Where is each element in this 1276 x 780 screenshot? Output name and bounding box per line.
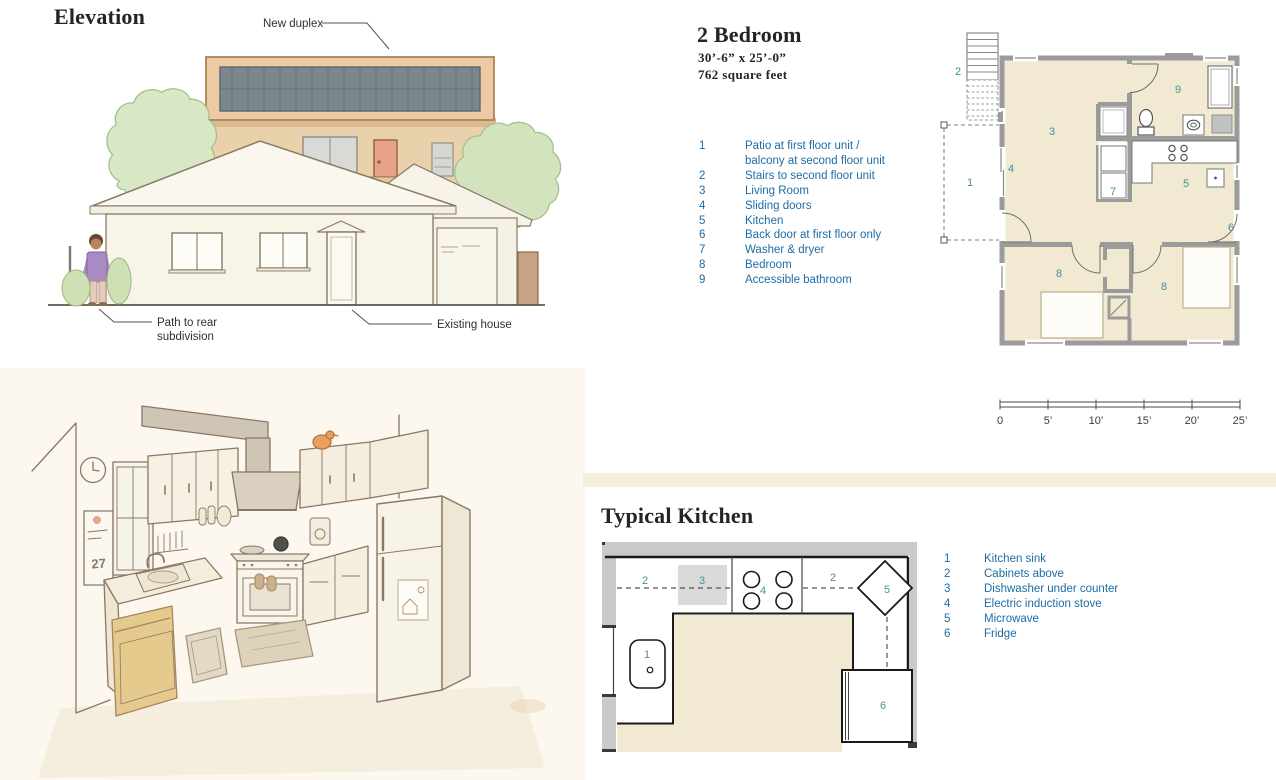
calendar-date: 27 xyxy=(91,556,106,572)
two-bedroom-title: 2 Bedroom xyxy=(697,22,802,48)
legend-label: Dishwasher under counter xyxy=(984,582,1118,597)
legend-label: Fridge xyxy=(984,627,1017,642)
house-window-1 xyxy=(169,233,225,273)
scale-tick-0: 0 xyxy=(997,415,1003,427)
kplan-label-stove: 4 xyxy=(760,585,766,597)
legend-row: 4Sliding doors xyxy=(699,199,919,214)
legend-num: 1 xyxy=(699,139,745,154)
kplan-top-wall xyxy=(602,542,917,556)
legend-row: 7Washer & dryer xyxy=(699,243,919,258)
plan-label-sliding: 4 xyxy=(1008,163,1014,175)
legend-num: 6 xyxy=(944,627,984,642)
legend-label: Washer & dryer xyxy=(745,243,824,258)
legend-row: 2Stairs to second floor unit xyxy=(699,169,919,184)
scale-tick-5: 5’ xyxy=(1044,415,1053,427)
legend-label: Living Room xyxy=(745,184,809,199)
toilet xyxy=(1138,110,1154,136)
plan-label-patio: 1 xyxy=(967,177,973,189)
duplex-window-band xyxy=(220,67,480,111)
legend-label: Kitchen xyxy=(745,214,783,229)
legend-num: 1 xyxy=(944,552,984,567)
scale-tick-25: 25’ xyxy=(1233,415,1248,427)
legend-num xyxy=(699,154,745,169)
section-divider-band xyxy=(583,473,1276,487)
legend-row: 5Kitchen xyxy=(699,214,919,229)
legend-num: 2 xyxy=(944,567,984,582)
two-bedroom-area: 762 square feet xyxy=(698,67,788,83)
scale-tick-10: 10’ xyxy=(1089,415,1104,427)
kitchen-window xyxy=(113,462,153,575)
kplan-label-sink: 1 xyxy=(644,649,650,661)
legend-num: 7 xyxy=(699,243,745,258)
plan-label-bedroom-right: 8 xyxy=(1161,281,1167,293)
fridge-child-drawing xyxy=(398,580,428,620)
stairs xyxy=(967,33,1003,122)
scale-tick-15: 15’ xyxy=(1137,415,1152,427)
typical-kitchen-plan: 2 3 4 2 5 1 6 xyxy=(595,540,925,768)
plan-label-kitchen: 5 xyxy=(1183,178,1189,190)
elevation-drawing: New duplex Path to rear subdivision Exis… xyxy=(0,0,590,370)
legend-row: 2Cabinets above xyxy=(944,567,1174,582)
legend-num: 6 xyxy=(699,228,745,243)
legend-row: 6Back door at first floor only xyxy=(699,228,919,243)
house-window-2 xyxy=(257,233,310,271)
legend-row: 3Dishwasher under counter xyxy=(944,582,1174,597)
wall-clock xyxy=(81,458,106,483)
duplex-side-door xyxy=(432,143,453,176)
kplan-left-wall xyxy=(602,545,616,752)
kplan-label-cabinets-left: 2 xyxy=(642,575,648,587)
wall-calendar xyxy=(84,511,113,585)
typical-kitchen-title: Typical Kitchen xyxy=(601,503,753,529)
kplan-sink xyxy=(630,640,665,688)
legend-num: 5 xyxy=(699,214,745,229)
kitchen-illustration: 27 xyxy=(0,368,585,780)
plan-label-bathroom: 9 xyxy=(1175,84,1181,96)
path-label-line1: Path to rear xyxy=(157,317,217,329)
path-label-line2: subdivision xyxy=(157,331,214,343)
two-bedroom-floor-plan: 1 2 3 4 5 6 7 8 8 9 0 5’ 10’ 15’ 20’ 25’ xyxy=(930,20,1250,432)
legend-num: 9 xyxy=(699,273,745,288)
paint-smudge xyxy=(510,699,546,713)
legend-label: Kitchen sink xyxy=(984,552,1046,567)
legend-num: 4 xyxy=(944,597,984,612)
side-gate xyxy=(518,252,538,305)
two-bedroom-legend: 1Patio at first floor unit / balcony at … xyxy=(699,139,919,288)
legend-label: Accessible bathroom xyxy=(745,273,852,288)
legend-label: Bedroom xyxy=(745,258,792,273)
legend-row: 8Bedroom xyxy=(699,258,919,273)
legend-num: 3 xyxy=(699,184,745,199)
kplan-microwave xyxy=(858,561,912,668)
bush-right xyxy=(107,258,131,304)
architectural-sheet: Elevation xyxy=(0,0,1276,780)
kplan-label-cabinets-right: 2 xyxy=(830,572,836,584)
plan-label-living: 3 xyxy=(1049,126,1055,138)
counter-bottles xyxy=(199,506,231,526)
legend-row: 1Kitchen sink xyxy=(944,552,1174,567)
kplan-fridge xyxy=(842,670,912,742)
new-duplex-label: New duplex xyxy=(263,18,323,30)
dishwasher-cabinet xyxy=(112,606,177,716)
kplan-label-microwave: 5 xyxy=(884,584,890,596)
legend-label: Electric induction stove xyxy=(984,597,1102,612)
legend-row: 5Microwave xyxy=(944,612,1174,627)
plan-label-washer: 7 xyxy=(1110,186,1116,198)
coffee-maker xyxy=(310,518,330,545)
legend-label: balcony at second floor unit xyxy=(745,154,885,169)
legend-num: 4 xyxy=(699,199,745,214)
kplan-label-fridge: 6 xyxy=(880,700,886,712)
legend-label: Patio at first floor unit / xyxy=(745,139,859,154)
plan-label-bedroom-left: 8 xyxy=(1056,268,1062,280)
bush-left xyxy=(62,270,90,306)
plan-label-back-door: 6 xyxy=(1228,222,1234,234)
legend-row: 6Fridge xyxy=(944,627,1174,642)
existing-house-label: Existing house xyxy=(437,319,512,331)
legend-label: Cabinets above xyxy=(984,567,1064,582)
two-bedroom-dimensions: 30’-6” x 25’-0” xyxy=(698,50,786,66)
legend-label: Stairs to second floor unit xyxy=(745,169,875,184)
bed-left xyxy=(1041,292,1103,338)
legend-label: Microwave xyxy=(984,612,1039,627)
legend-row: 3Living Room xyxy=(699,184,919,199)
hall-closet xyxy=(1100,107,1127,136)
shower xyxy=(1208,66,1232,108)
garage-door xyxy=(437,228,497,305)
roof-tab xyxy=(1165,53,1193,58)
kplan-stove xyxy=(744,572,793,610)
fridge xyxy=(377,496,470,702)
legend-num: 8 xyxy=(699,258,745,273)
bath-gray-cabinet xyxy=(1212,115,1232,133)
legend-row: 9Accessible bathroom xyxy=(699,273,919,288)
legend-row: balcony at second floor unit xyxy=(699,154,919,169)
kettle xyxy=(274,537,288,551)
legend-num: 5 xyxy=(944,612,984,627)
typical-kitchen-legend: 1Kitchen sink 2Cabinets above 3Dishwashe… xyxy=(944,552,1174,641)
scale-bar: 0 5’ 10’ 15’ 20’ 25’ xyxy=(997,400,1247,428)
legend-row: 4Electric induction stove xyxy=(944,597,1174,612)
legend-label: Sliding doors xyxy=(745,199,811,214)
legend-label: Back door at first floor only xyxy=(745,228,881,243)
kplan-label-dishwasher: 3 xyxy=(699,575,705,587)
bath-sink-counter xyxy=(1183,115,1204,135)
legend-num: 3 xyxy=(944,582,984,597)
bed-right xyxy=(1183,247,1230,308)
plan-label-stairs: 2 xyxy=(955,66,961,78)
scale-tick-20: 20’ xyxy=(1185,415,1200,427)
legend-num: 2 xyxy=(699,169,745,184)
closet-opening xyxy=(1102,260,1107,277)
legend-row: 1Patio at first floor unit / xyxy=(699,139,919,154)
